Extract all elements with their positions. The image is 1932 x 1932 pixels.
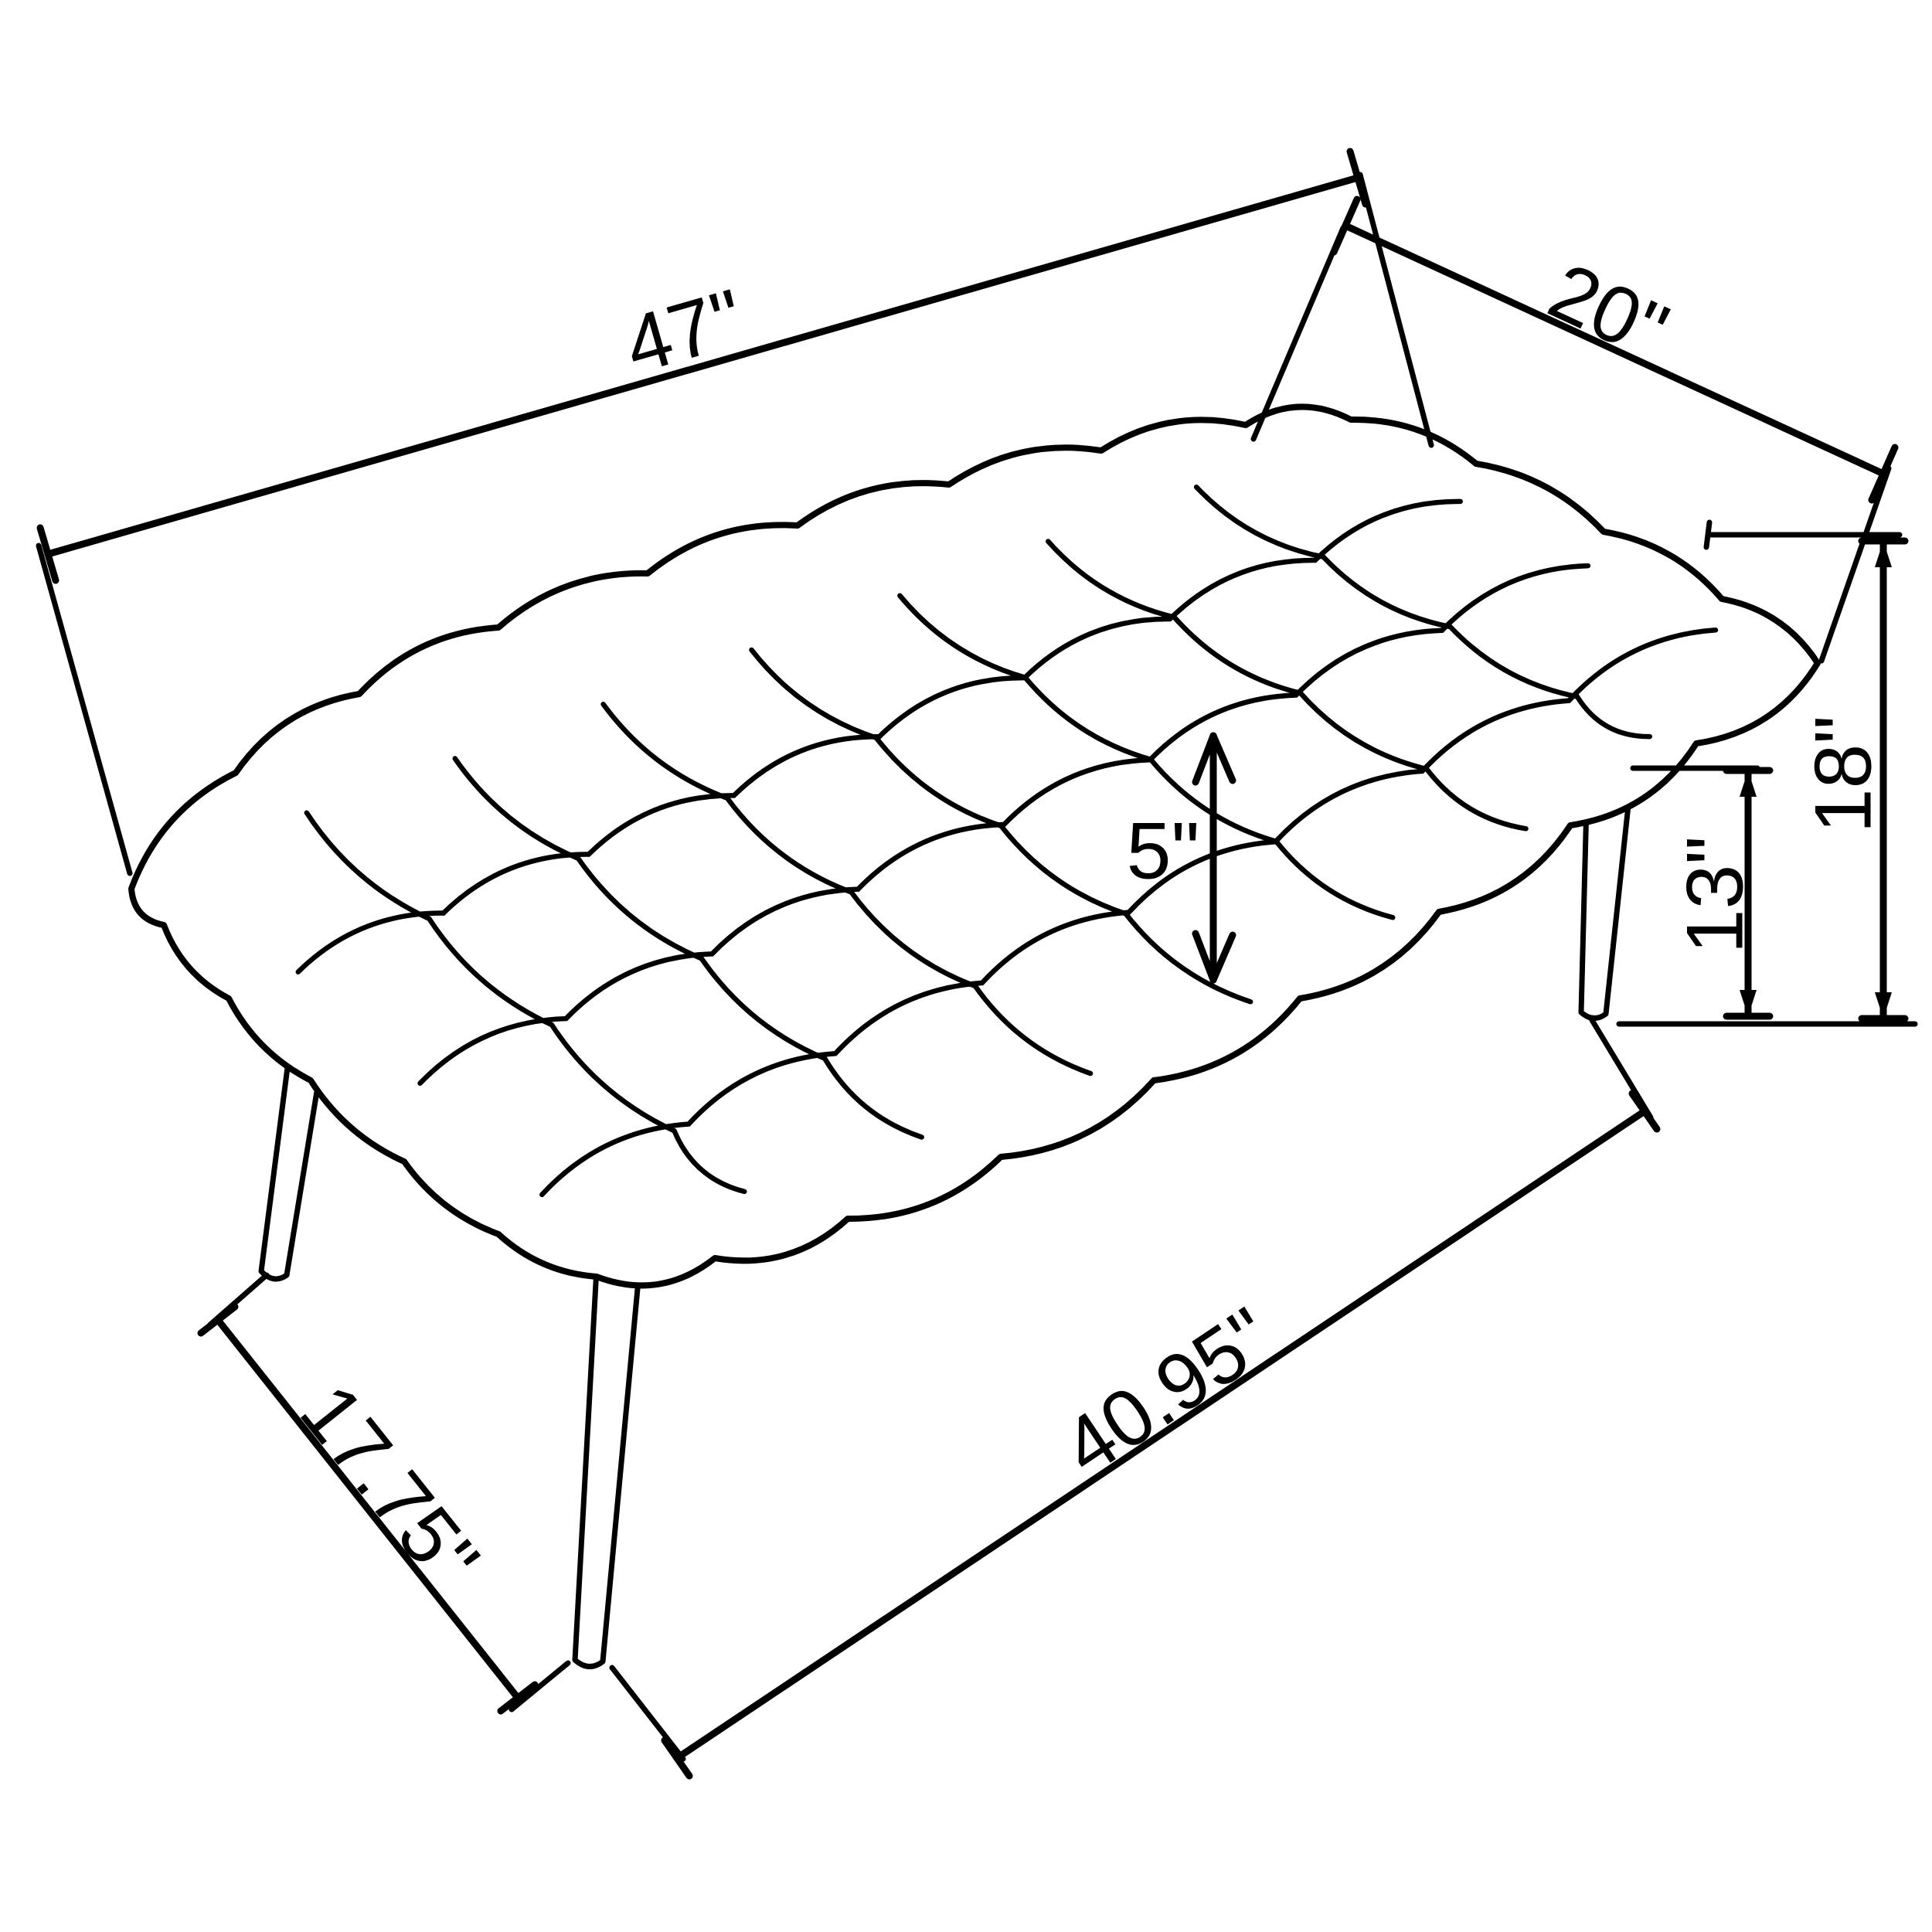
bench-leg <box>575 1269 638 1667</box>
extension-line <box>512 1663 568 1709</box>
dimension-arrowhead <box>1875 992 1892 1019</box>
dim-label-seat-length: 47" <box>615 273 753 392</box>
extension-line <box>612 1668 683 1759</box>
extension-line <box>1360 175 1431 445</box>
dim-label-seat-depth: 20" <box>1536 247 1681 377</box>
bench-cushion <box>131 406 1818 1285</box>
bench-dimension-diagram: 47" 20" 18" 13" 5" 17.75" 40.95" <box>0 0 1932 1932</box>
dimension-tick <box>201 1307 235 1333</box>
dim-label-leg-height: 13" <box>1670 836 1760 954</box>
extension-line <box>39 546 130 873</box>
dimension-arrowhead <box>1740 990 1757 1016</box>
cushion-outline <box>131 406 1818 1285</box>
dim-label-cushion-thickness: 5" <box>1127 806 1200 896</box>
dimension-arrowhead <box>1875 541 1892 567</box>
dimension-tick <box>1632 1094 1657 1129</box>
dim-label-overall-height: 18" <box>1798 716 1888 834</box>
dim-label-leg-span-depth: 17.75" <box>283 1368 496 1604</box>
extension-line <box>1706 522 1709 547</box>
dimension-arrowhead <box>1740 770 1757 797</box>
dim-label-leg-span-length: 40.95" <box>1047 1291 1287 1493</box>
